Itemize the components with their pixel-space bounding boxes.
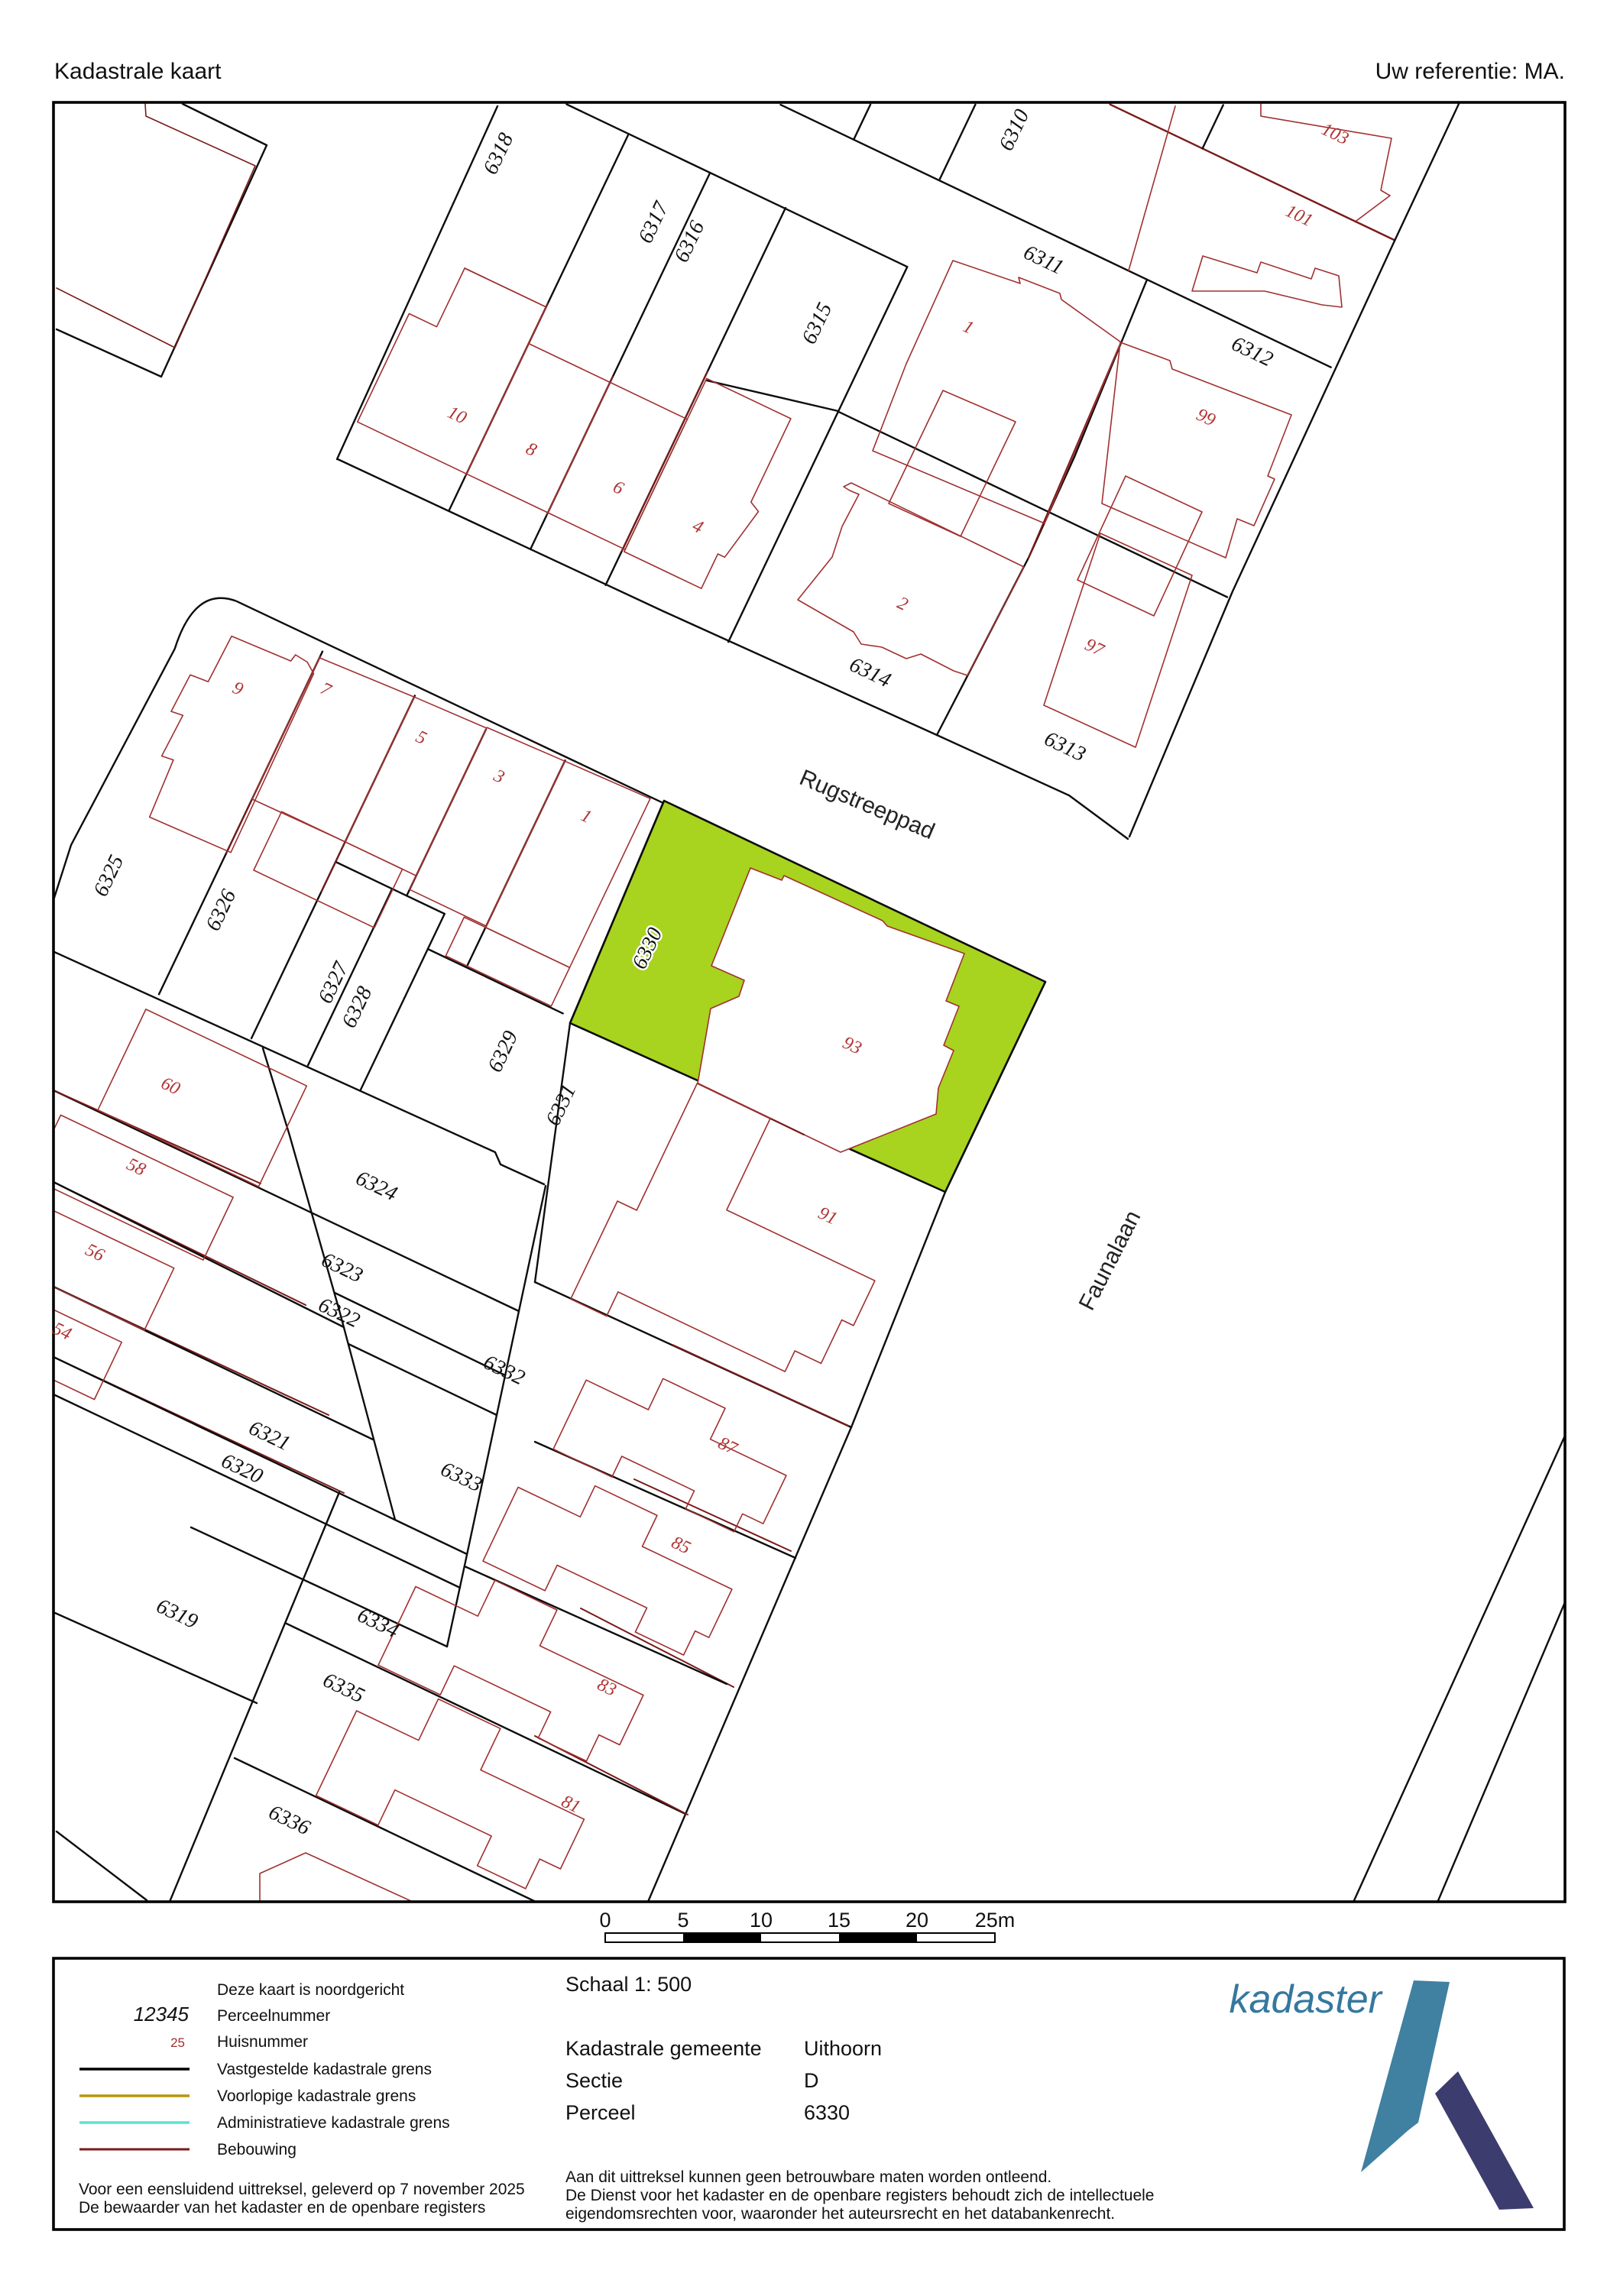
svg-text:De bewaarder van het kadaster: De bewaarder van het kadaster en de open… (79, 2199, 485, 2217)
svg-text:6330: 6330 (804, 2101, 850, 2124)
svg-text:Schaal 1: 500: Schaal 1: 500 (565, 1973, 692, 1996)
svg-text:Huisnummer: Huisnummer (217, 2033, 308, 2051)
svg-text:Aan dit uittreksel kunnen geen: Aan dit uittreksel kunnen geen betrouwba… (565, 2168, 1051, 2186)
svg-text:Administratieve kadastrale gre: Administratieve kadastrale grens (217, 2114, 450, 2132)
svg-text:Voor een eensluidend uittrekse: Voor een eensluidend uittreksel, gelever… (79, 2181, 525, 2198)
svg-text:Sectie: Sectie (565, 2069, 623, 2092)
svg-text:kadaster: kadaster (1230, 1977, 1384, 2022)
svg-text:12345: 12345 (134, 2003, 190, 2026)
svg-text:De Dienst voor het kadaster en: De Dienst voor het kadaster en de openba… (565, 2187, 1154, 2204)
svg-text:Kadastrale kaart: Kadastrale kaart (54, 59, 222, 84)
svg-text:5: 5 (677, 1909, 688, 1932)
svg-text:Perceel: Perceel (565, 2101, 636, 2124)
svg-text:20: 20 (906, 1909, 928, 1932)
svg-text:25: 25 (170, 2035, 185, 2050)
svg-text:Vastgestelde kadastrale grens: Vastgestelde kadastrale grens (217, 2061, 432, 2078)
svg-text:Voorlopige kadastrale grens: Voorlopige kadastrale grens (217, 2087, 416, 2105)
svg-text:Perceelnummer: Perceelnummer (217, 2007, 330, 2025)
svg-text:Deze kaart is noordgericht: Deze kaart is noordgericht (217, 1981, 404, 1999)
svg-text:25m: 25m (975, 1909, 1016, 1932)
svg-text:Uw referentie: MA.: Uw referentie: MA. (1375, 59, 1565, 84)
svg-text:10: 10 (750, 1909, 773, 1932)
svg-text:D: D (804, 2069, 819, 2092)
svg-text:Uithoorn: Uithoorn (804, 2037, 882, 2060)
svg-text:15: 15 (828, 1909, 851, 1932)
svg-text:Kadastrale gemeente: Kadastrale gemeente (565, 2037, 762, 2060)
svg-text:0: 0 (599, 1909, 611, 1932)
svg-text:Bebouwing: Bebouwing (217, 2141, 296, 2158)
svg-text:eigendomsrechten voor, waarond: eigendomsrechten voor, waaronder het aut… (565, 2205, 1115, 2223)
